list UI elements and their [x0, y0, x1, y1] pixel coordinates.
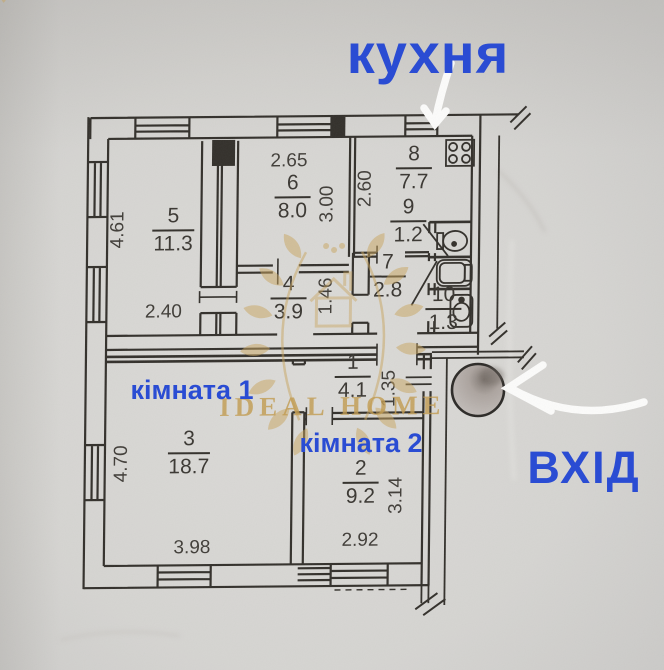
- room2-annotation: кімната 2: [299, 430, 422, 457]
- photo-grain: [0, 0, 664, 670]
- floor-plan-drawing: 511.368.087.791.243.972.8101.314.1318.72…: [0, 0, 664, 670]
- entrance-annotation: ВХІД: [527, 445, 640, 490]
- room1-annotation: кімната 1: [130, 377, 253, 404]
- floor-plan-photo: 511.368.087.791.243.972.8101.314.1318.72…: [0, 0, 664, 670]
- kitchen-annotation: кухня: [347, 26, 510, 82]
